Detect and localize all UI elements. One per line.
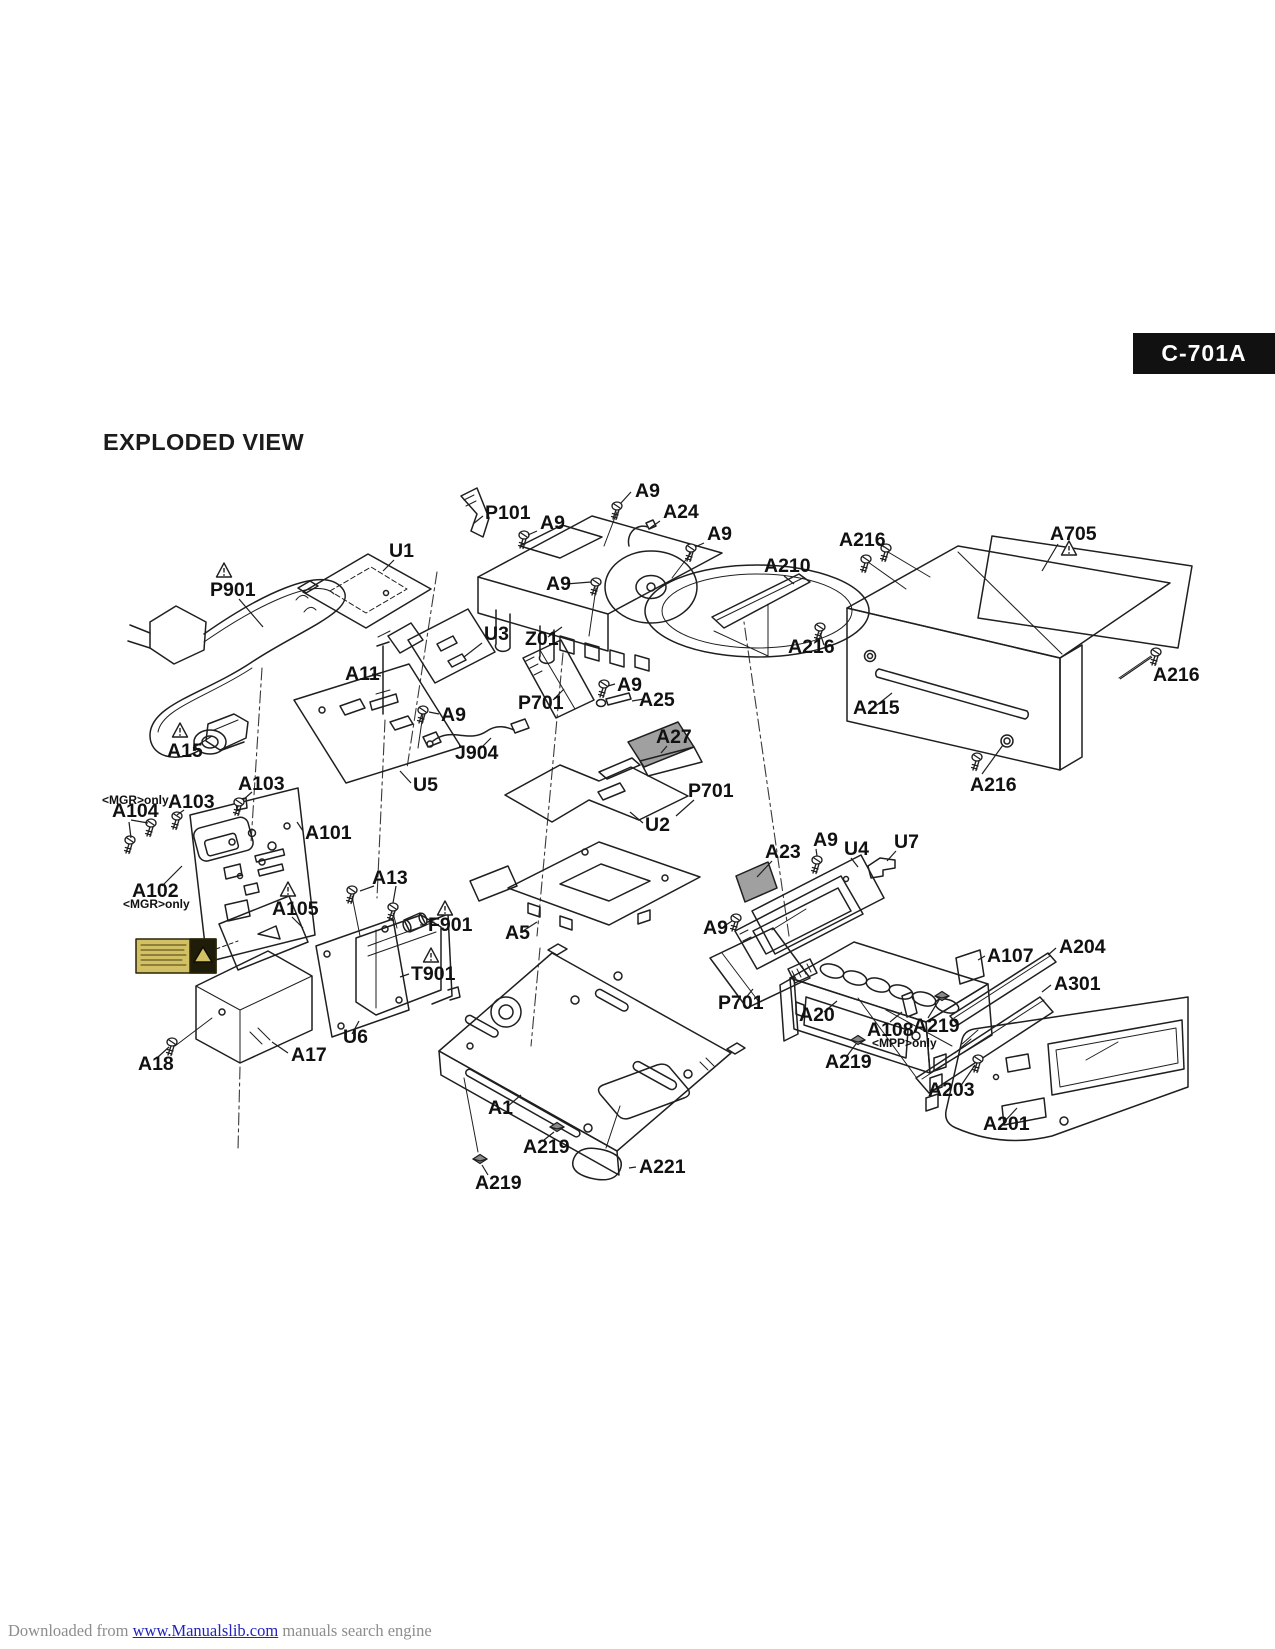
part-a108-strip xyxy=(902,992,917,1017)
part-label-A25: A25 xyxy=(639,689,675,711)
part-label-A216: A216 xyxy=(1153,664,1200,686)
screw-icon xyxy=(234,798,244,816)
leader-line xyxy=(464,643,482,657)
part-label-J904: J904 xyxy=(455,742,499,764)
warning-triangle-icon xyxy=(173,723,188,737)
part-label-A104: A104 xyxy=(112,800,159,822)
leader-line xyxy=(1042,985,1051,992)
part-label-U5: U5 xyxy=(413,774,438,796)
part-label-A23: A23 xyxy=(765,841,801,863)
part-label-A15: A15 xyxy=(167,740,203,762)
leader-line xyxy=(1048,948,1056,955)
part-label-A27: A27 xyxy=(656,726,692,748)
part-label-A9: A9 xyxy=(703,917,728,939)
part-label-A215: A215 xyxy=(853,697,900,719)
part-label-MPPonly: <MPP>only xyxy=(872,1036,937,1050)
part-a1-chassis xyxy=(439,944,745,1175)
part-label-A219: A219 xyxy=(523,1136,570,1158)
part-label-A17: A17 xyxy=(291,1044,327,1066)
part-label-P701: P701 xyxy=(688,780,734,802)
part-label-A219: A219 xyxy=(475,1172,522,1194)
part-label-T901: T901 xyxy=(411,963,456,985)
part-label-A9: A9 xyxy=(546,573,571,595)
screw-icon xyxy=(812,856,822,874)
leader-line xyxy=(400,974,409,977)
part-label-A219: A219 xyxy=(825,1051,872,1073)
part-label-A216: A216 xyxy=(839,529,886,551)
retainer-clip-icon xyxy=(851,1036,865,1045)
part-label-A20: A20 xyxy=(799,1004,835,1026)
part-label-U4: U4 xyxy=(844,838,869,860)
part-label-A9: A9 xyxy=(635,480,660,502)
part-label-A204: A204 xyxy=(1059,936,1106,958)
warning-triangle-icon xyxy=(281,882,296,896)
part-label-A18: A18 xyxy=(138,1053,174,1075)
part-label-A5: A5 xyxy=(505,922,530,944)
part-label-A216: A216 xyxy=(970,774,1017,796)
part-a215-cover xyxy=(847,546,1170,770)
part-f901-fuse xyxy=(402,912,429,933)
leader-line xyxy=(982,745,1003,774)
part-a23-plate xyxy=(736,862,777,902)
part-label-A219: A219 xyxy=(913,1015,960,1037)
part-label-A9: A9 xyxy=(540,512,565,534)
retainer-clip-icon xyxy=(473,1155,487,1164)
screw-icon xyxy=(347,886,357,904)
leader-line xyxy=(621,492,631,503)
manualslib-link[interactable]: www.Manualslib.com xyxy=(133,1621,279,1640)
exploded-view-diagram: A9P101A9A24A9A9Z01U3U1P901A15A11A9J904U5… xyxy=(0,0,1275,1649)
part-a5-frame xyxy=(470,842,700,930)
part-label-A203: A203 xyxy=(928,1079,975,1101)
part-label-A13: A13 xyxy=(372,867,408,889)
part-u2-board xyxy=(505,758,688,822)
warning-triangle-icon xyxy=(438,901,453,915)
part-label-A9: A9 xyxy=(707,523,732,545)
leader-line xyxy=(400,771,411,783)
leader-line xyxy=(1042,544,1058,571)
part-label-MGRonly: <MGR>only xyxy=(123,897,190,911)
screw-icon xyxy=(1151,648,1161,666)
part-label-A105: A105 xyxy=(272,898,319,920)
part-label-A705: A705 xyxy=(1050,523,1097,545)
part-label-Z01: Z01 xyxy=(525,628,559,650)
part-label-A24: A24 xyxy=(663,501,699,523)
leader-line xyxy=(429,712,439,714)
screw-icon xyxy=(388,903,398,921)
part-label-U1: U1 xyxy=(389,540,414,562)
footer-prefix-text: Downloaded from xyxy=(8,1621,133,1640)
part-label-A103: A103 xyxy=(238,773,285,795)
leader-line xyxy=(239,599,263,627)
part-label-U6: U6 xyxy=(343,1026,368,1048)
screw-icon xyxy=(599,680,609,698)
screw-icon xyxy=(861,555,871,573)
part-label-A107: A107 xyxy=(987,945,1034,967)
part-label-P701: P701 xyxy=(518,692,564,714)
leader-line xyxy=(1120,657,1152,679)
service-manual-page: C-701A EXPLODED VIEW xyxy=(0,0,1275,1649)
part-label-A216: A216 xyxy=(788,636,835,658)
footer-watermark: Downloaded from www.Manualslib.com manua… xyxy=(8,1621,432,1641)
part-label-U2: U2 xyxy=(645,814,670,836)
leader-line xyxy=(528,531,537,535)
part-label-U7: U7 xyxy=(894,831,919,853)
screw-icon xyxy=(612,502,622,520)
screw-icon xyxy=(972,753,982,771)
part-label-A11: A11 xyxy=(345,663,380,685)
part-a705-label xyxy=(978,536,1192,648)
warning-triangle-icon xyxy=(217,563,232,577)
part-label-A210: A210 xyxy=(764,555,811,577)
part-label-U3: U3 xyxy=(484,623,509,645)
part-label-A9: A9 xyxy=(441,704,466,726)
part-label-A1: A1 xyxy=(488,1097,513,1119)
part-u1-board xyxy=(298,554,431,628)
part-label-A221: A221 xyxy=(639,1156,686,1178)
part-label-F901: F901 xyxy=(428,914,473,936)
part-label-A103: A103 xyxy=(168,791,215,813)
leader-line xyxy=(629,1167,636,1168)
part-label-A201: A201 xyxy=(983,1113,1030,1135)
screw-icon xyxy=(591,578,601,596)
part-label-P901: P901 xyxy=(210,579,256,601)
footer-suffix-text: manuals search engine xyxy=(278,1621,431,1640)
screw-icon xyxy=(519,531,529,549)
part-label-A9: A9 xyxy=(813,829,838,851)
part-label-A101: A101 xyxy=(305,822,352,844)
part-a102-bracket xyxy=(192,816,255,863)
warning-triangle-icon xyxy=(424,948,439,962)
part-label-P101: P101 xyxy=(485,502,531,524)
leader-line xyxy=(676,800,694,816)
part-label-A301: A301 xyxy=(1054,973,1101,995)
part-label-P701: P701 xyxy=(718,992,764,1014)
screw-icon xyxy=(125,836,135,854)
caution-laser-label xyxy=(136,939,216,973)
